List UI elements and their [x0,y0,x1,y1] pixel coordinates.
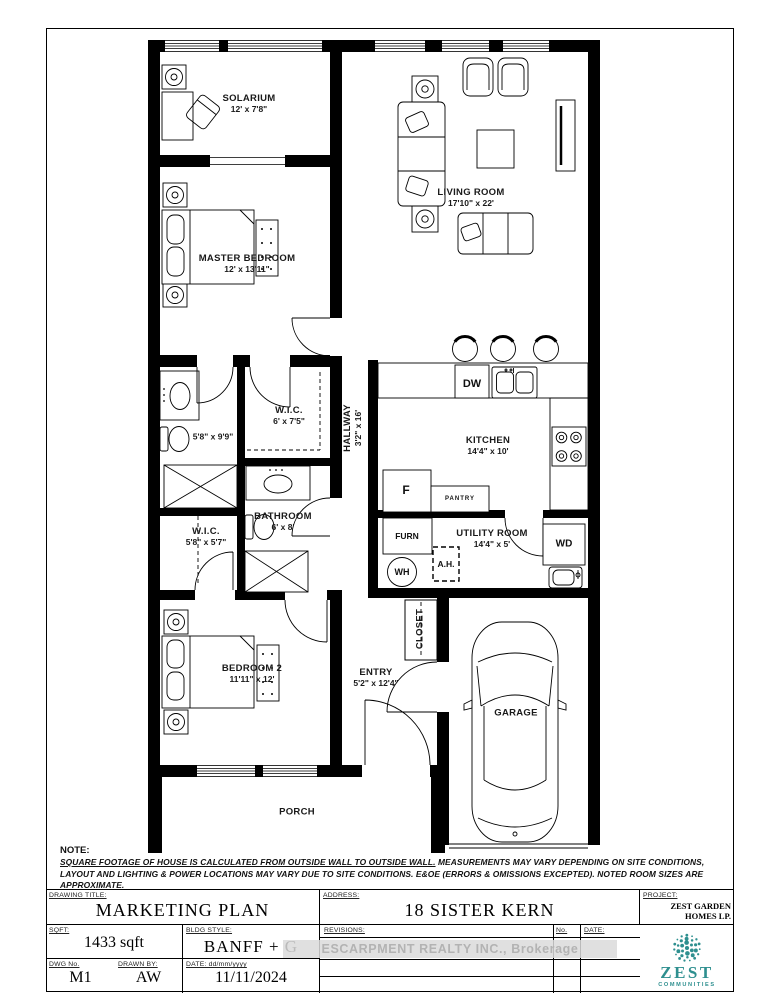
revisions-row-line [320,959,640,960]
revisions-label: REVISIONS: [324,927,365,934]
sqft-cell: SQFT: 1433 sqft [46,925,183,959]
air-handler-label: A.H. [438,559,455,569]
sqft-value: 1433 sqft [46,934,182,952]
revisions-date-label: DATE: [584,927,605,934]
toilet-icon [245,515,253,539]
bldg-style-label: BLDG STYLE: [186,927,232,934]
room-label-hallway: HALLWAY 3'2" x 16' [342,404,364,452]
revisions-row-line [320,976,640,977]
living-room-furniture [398,58,575,254]
project-name: ZEST GARDEN HOMES LP. [659,901,731,921]
garage-door [449,844,588,848]
solarium-desk-icon [162,65,221,140]
room-label-kitchen: KITCHEN 14'4" x 10' [466,435,510,457]
drawing-title-label: DRAWING TITLE: [49,892,107,899]
room-label-garage: GARAGE [494,708,538,719]
address-label: ADDRESS: [323,892,359,899]
washer-dryer-label: WD [556,539,573,550]
kitchen-sink-icon [492,367,537,398]
room-label-ensuite: 5'8" x 9'9" [193,432,233,443]
water-heater-label: WH [395,567,410,577]
project-label: PROJECT: [643,892,677,899]
drawn-by-label: DRAWN BY: [118,961,158,968]
ensuite-toilet-icon [160,427,168,451]
zest-logo: ZEST COMMUNITIES [640,925,734,993]
dwg-no-label: DWG No. [49,961,79,968]
zest-logo-sub: COMMUNITIES [658,982,715,988]
room-label-porch: PORCH [279,807,315,818]
zest-logo-text: ZEST [660,965,713,981]
room-label-utility-room: UTILITY ROOM 14'4" x 5' [456,528,528,550]
zest-burst-icon [670,931,704,965]
revisions-row-line [320,937,640,938]
note-text: SQUARE FOOTAGE OF HOUSE IS CALCULATED FR… [60,857,738,892]
drawn-by-value: AW [115,969,182,987]
dwg-no-cell: DWG No. M1 [46,959,115,993]
fridge-label: F [402,483,409,497]
sqft-label: SQFT: [49,927,69,934]
revisions-no-label: No. [556,927,567,934]
dishwasher-label: DW [463,378,481,390]
front-door [365,700,430,765]
address: 18 SISTER KERN [320,900,639,921]
drawing-title-cell: DRAWING TITLE: MARKETING PLAN [46,890,320,925]
bedroom2-door [285,600,327,642]
furnace-label: FURN [395,531,419,541]
wic-bedroom2-door [195,552,233,590]
floorplan-drawing [0,0,779,858]
address-cell: ADDRESS: 18 SISTER KERN [320,890,640,925]
room-label-bedroom2: BEDROOM 2 11'11" x 12' [222,663,282,685]
wic-master-door [250,367,290,407]
stove-icon [552,427,586,466]
date-value: 11/11/2024 [183,969,319,987]
project-cell: PROJECT: ZEST GARDEN HOMES LP. [640,890,734,925]
car-icon [464,622,566,842]
drawing-title: MARKETING PLAN [46,900,319,921]
room-label-entry: ENTRY 5'2" x 12'4" [353,667,398,689]
room-label-master-bedroom: MASTER BEDROOM 12' x 13'11" [199,253,296,275]
ensuite-door [197,367,233,403]
room-label-closet: CLOSET [415,609,426,649]
brokerage-watermark: ESCARPMENT REALTY INC., Brokerage [283,940,617,958]
date-label: DATE: dd/mm/yyyy [186,961,247,968]
dwg-no-value: M1 [46,969,115,987]
laundry-sink-icon [549,567,582,588]
room-label-living-room: LIVING ROOM 17'10" x 22' [437,187,504,209]
room-label-wic-master: W.I.C. 6' x 7'5" [273,405,305,427]
room-label-wic-bedroom2: W.I.C. 5'8" x 5'7" [186,526,226,548]
room-label-solarium: SOLARIUM 12' x 7'8" [222,93,275,115]
date-cell: DATE: dd/mm/yyyy 11/11/2024 [183,959,320,993]
note-label: NOTE: [60,845,90,856]
floorplan-page: { "plan": { "rooms": { "solarium": {"nam… [0,0,779,1008]
drawn-by-cell: DRAWN BY: AW [115,959,183,993]
master-bed-icon [162,183,278,307]
master-door [292,318,330,356]
room-label-bathroom: BATHROOM 6' x 8' [254,511,312,533]
pantry-label: PANTRY [445,496,475,502]
note-underlined: SQUARE FOOTAGE OF HOUSE IS CALCULATED FR… [60,857,436,867]
